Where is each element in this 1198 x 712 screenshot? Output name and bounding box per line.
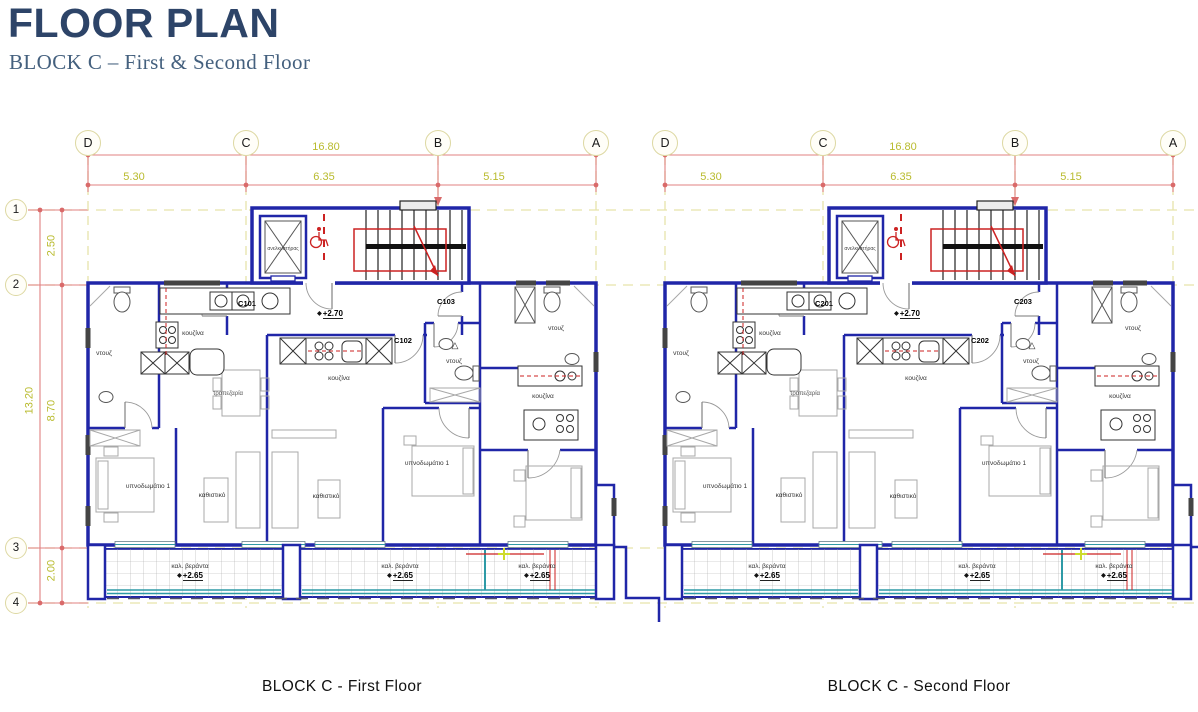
shower-label-2: ντουζ xyxy=(1003,358,1059,366)
dim-width-seg-3: 5.15 xyxy=(464,171,524,184)
veranda-level: ◆+2.65 xyxy=(933,571,1021,581)
level-marker-icon: ◆ xyxy=(1101,573,1106,579)
bedroom-label-1: υπνοδωμάτιο 1 xyxy=(681,483,769,491)
grid-column-marker-B: B xyxy=(425,130,451,156)
grid-column-marker-A: A xyxy=(1160,130,1186,156)
kitchen-label-2: κουζίνα xyxy=(888,375,944,383)
level-marker-icon: ◆ xyxy=(317,311,322,317)
veranda-level: ◆+2.65 xyxy=(493,571,581,581)
veranda-block-1: καλ. βεράντα ◆+2.65 xyxy=(146,563,234,580)
shower-drain-icon: △ xyxy=(447,340,463,351)
plan-caption: BLOCK C - First Floor xyxy=(142,678,542,697)
grid-row-label: 4 xyxy=(13,597,19,609)
grid-column-label: C xyxy=(818,136,827,150)
kitchen-label-3: κουζίνα xyxy=(515,393,571,401)
dim-width-seg-3: 5.15 xyxy=(1041,171,1101,184)
living-label-2: καθιστικό xyxy=(282,493,370,501)
kitchen-label-3: κουζίνα xyxy=(1092,393,1148,401)
level-marker-icon: ◆ xyxy=(524,573,529,579)
living-label-1: καθιστικό xyxy=(168,492,256,500)
dim-width-total: 16.80 xyxy=(873,141,933,154)
plan-caption: BLOCK C - Second Floor xyxy=(719,678,1119,697)
veranda-block-3: καλ. βεράντα ◆+2.65 xyxy=(493,563,581,580)
veranda-level: ◆+2.65 xyxy=(146,571,234,581)
floor-plan-second-floor: D C B A 16.80 5.30 6.35 5.15 ανελκυστήρα… xyxy=(591,130,1198,705)
shower-label-1: ντουζ xyxy=(76,350,132,358)
grid-row-label: 3 xyxy=(13,542,19,554)
level-marker-icon: ◆ xyxy=(177,573,182,579)
grid-column-label: D xyxy=(660,136,669,150)
grid-column-marker-D: D xyxy=(75,130,101,156)
level-marker-icon: ◆ xyxy=(754,573,759,579)
veranda-block-3: καλ. βεράντα ◆+2.65 xyxy=(1070,563,1158,580)
dim-width-seg-2: 6.35 xyxy=(871,171,931,184)
kitchen-label-2: κουζίνα xyxy=(311,375,367,383)
unit-label-right: C103 xyxy=(424,297,468,306)
veranda-label: καλ. βεράντα xyxy=(723,563,811,571)
dim-width-total: 16.80 xyxy=(296,141,356,154)
level-marker-icon: ◆ xyxy=(387,573,392,579)
grid-row-marker-3: 3 xyxy=(5,537,27,559)
elevator-label: ανελκυστήρας xyxy=(259,246,307,252)
dining-label: τραπεζαρία xyxy=(777,391,833,398)
grid-row-marker-4: 4 xyxy=(5,592,27,614)
bedroom-label-2: υπνοδωμάτιο 1 xyxy=(383,460,471,468)
veranda-block-2: καλ. βεράντα ◆+2.65 xyxy=(356,563,444,580)
living-label-1: καθιστικό xyxy=(745,492,833,500)
veranda-label: καλ. βεράντα xyxy=(356,563,444,571)
veranda-level: ◆+2.65 xyxy=(723,571,811,581)
veranda-block-1: καλ. βεράντα ◆+2.65 xyxy=(723,563,811,580)
hall-level: ◆+2.70 xyxy=(302,309,358,319)
hall-level: ◆+2.70 xyxy=(879,309,935,319)
veranda-label: καλ. βεράντα xyxy=(933,563,1021,571)
unit-label-middle: C202 xyxy=(958,336,1002,345)
floor-plan-drawing xyxy=(591,130,1198,705)
grid-column-marker-C: C xyxy=(810,130,836,156)
grid-column-marker-A: A xyxy=(583,130,609,156)
unit-label-middle: C102 xyxy=(381,336,425,345)
grid-row-marker-2: 2 xyxy=(5,274,27,296)
grid-column-marker-D: D xyxy=(652,130,678,156)
shower-label-3: ντουζ xyxy=(528,325,584,333)
dim-width-seg-1: 5.30 xyxy=(104,171,164,184)
grid-column-label: B xyxy=(434,136,442,150)
shower-label-1: ντουζ xyxy=(653,350,709,358)
grid-row-label: 2 xyxy=(13,279,19,291)
unit-label-left: C101 xyxy=(225,299,269,308)
level-marker-icon: ◆ xyxy=(894,311,899,317)
veranda-label: καλ. βεράντα xyxy=(146,563,234,571)
shower-label-3: ντουζ xyxy=(1105,325,1161,333)
veranda-level: ◆+2.65 xyxy=(1070,571,1158,581)
dining-label: τραπεζαρία xyxy=(200,391,256,398)
grid-column-label: B xyxy=(1011,136,1019,150)
grid-row-label: 1 xyxy=(13,204,19,216)
veranda-label: καλ. βεράντα xyxy=(493,563,581,571)
floor-plan-first-floor: D C B A 16.80 5.30 6.35 5.15 ανελκυστήρα… xyxy=(14,130,674,705)
grid-column-label: A xyxy=(1169,136,1177,150)
unit-label-right: C203 xyxy=(1001,297,1045,306)
bedroom-label-2: υπνοδωμάτιο 1 xyxy=(960,460,1048,468)
dim-width-seg-1: 5.30 xyxy=(681,171,741,184)
kitchen-label-1: κουζίνα xyxy=(742,330,798,338)
unit-label-left: C201 xyxy=(802,299,846,308)
level-marker-icon: ◆ xyxy=(964,573,969,579)
bedroom-label-1: υπνοδωμάτιο 1 xyxy=(104,483,192,491)
kitchen-label-1: κουζίνα xyxy=(165,330,221,338)
veranda-label: καλ. βεράντα xyxy=(1070,563,1158,571)
shower-label-2: ντουζ xyxy=(426,358,482,366)
veranda-block-2: καλ. βεράντα ◆+2.65 xyxy=(933,563,1021,580)
veranda-level: ◆+2.65 xyxy=(356,571,444,581)
grid-column-marker-C: C xyxy=(233,130,259,156)
dim-width-seg-2: 6.35 xyxy=(294,171,354,184)
grid-column-label: D xyxy=(83,136,92,150)
shower-drain-icon: △ xyxy=(1024,340,1040,351)
living-label-2: καθιστικό xyxy=(859,493,947,501)
grid-column-label: A xyxy=(592,136,600,150)
grid-row-marker-1: 1 xyxy=(5,199,27,221)
elevator-label: ανελκυστήρας xyxy=(836,246,884,252)
grid-column-label: C xyxy=(241,136,250,150)
grid-column-marker-B: B xyxy=(1002,130,1028,156)
floor-plan-drawing xyxy=(14,130,674,705)
